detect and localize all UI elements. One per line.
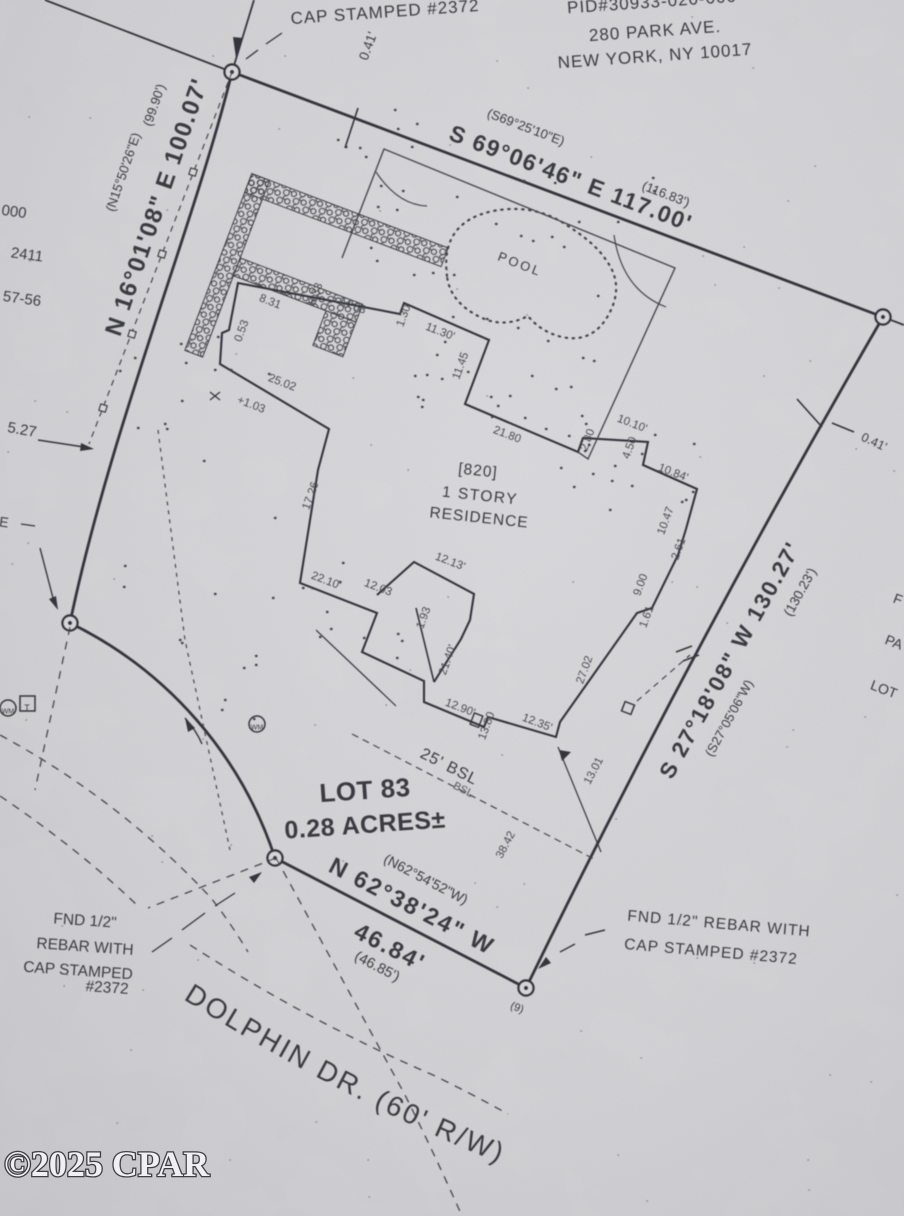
- svg-text:#2372: #2372: [85, 978, 129, 998]
- svg-text:©2025 CPAR: ©2025 CPAR: [4, 1144, 210, 1184]
- svg-text:WM: WM: [2, 709, 15, 716]
- svg-text:LOT 83: LOT 83: [318, 772, 411, 808]
- svg-text:WM: WM: [251, 725, 264, 732]
- svg-text:000: 000: [0, 202, 27, 222]
- svg-text:T: T: [24, 703, 30, 713]
